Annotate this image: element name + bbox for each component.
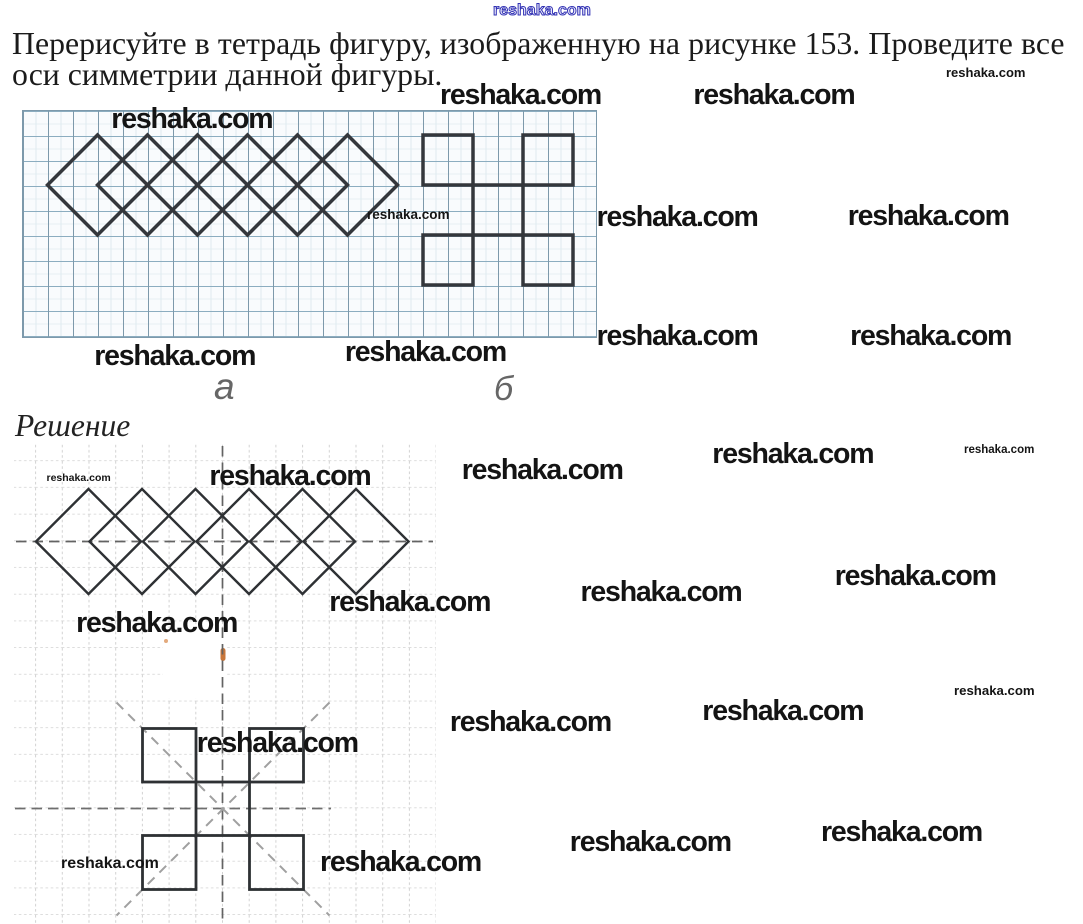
svg-text:а: а (214, 366, 235, 407)
svg-text:б: б (494, 370, 515, 408)
